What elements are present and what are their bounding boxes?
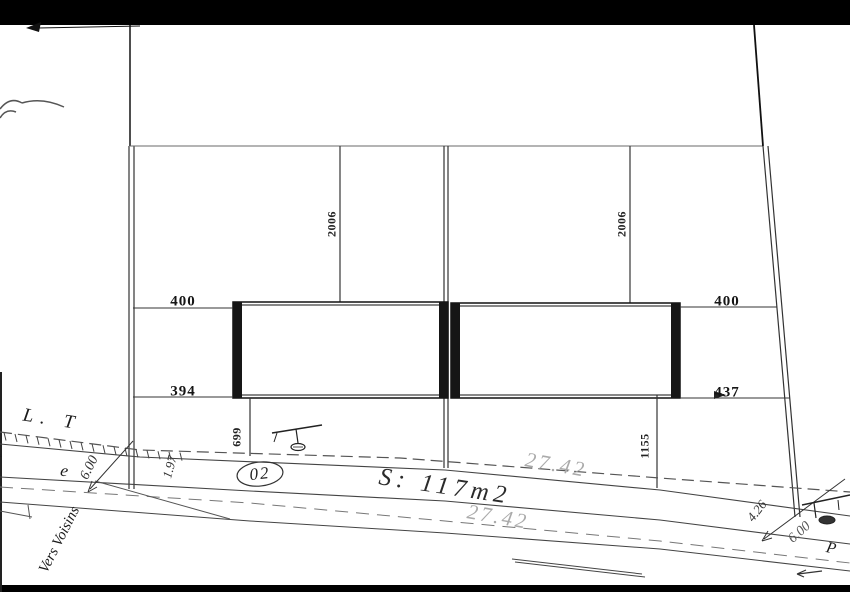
lot-number: 02 (249, 463, 272, 485)
building-left-west-wall (233, 302, 242, 398)
dim-right-bottom: 437 (714, 385, 740, 402)
dim-left-bottom: 394 (170, 384, 196, 401)
building-left (233, 302, 448, 398)
top-arrow-line (38, 26, 140, 28)
building-right-east-wall (671, 303, 680, 398)
handwritten-curl-mark (0, 101, 64, 118)
top-arrowhead (26, 22, 41, 32)
building-left-east-wall (439, 302, 448, 398)
building-right-west-wall (451, 303, 460, 398)
utility-pole-left (272, 425, 322, 451)
left-boundary-double-line (129, 146, 134, 489)
curb-double-line (512, 559, 645, 577)
road-edge-3 (0, 502, 850, 571)
dim-left-top: 400 (170, 294, 196, 311)
dim-setback-left: 699 (230, 427, 245, 447)
right-boundary-double-line (763, 146, 800, 517)
site-plan-canvas: 400 394 400 437 2006 2006 699 1155 L. T … (0, 0, 850, 592)
right-boundary-upper-line (754, 25, 763, 146)
building-right (451, 303, 680, 398)
dim-right-top: 400 (714, 294, 740, 311)
dim-depth-left: 2006 (325, 211, 340, 237)
dim-depth-right: 2006 (615, 211, 630, 237)
dim-setback-right: 1155 (638, 433, 653, 458)
small-arrow-bottom-right (797, 570, 822, 577)
road-left-stub (0, 505, 32, 519)
utility-pole-right (802, 495, 850, 524)
